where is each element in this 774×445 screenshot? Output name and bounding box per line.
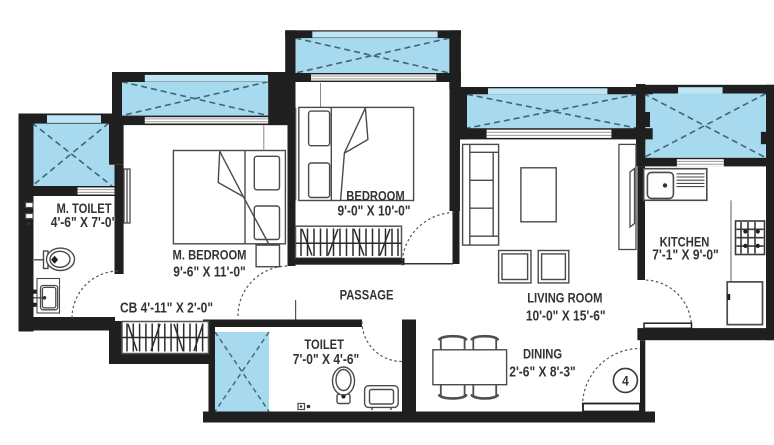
svg-text:7'-1" X 9'-0": 7'-1" X 9'-0" [652, 246, 718, 263]
svg-text:2'-6" X 8'-3": 2'-6" X 8'-3" [509, 363, 575, 380]
svg-text:9'-0" X 10'-0": 9'-0" X 10'-0" [337, 202, 410, 219]
svg-text:DINING: DINING [523, 346, 562, 361]
svg-text:10'-0" X 15'-6": 10'-0" X 15'-6" [526, 307, 606, 324]
svg-text:7'-0" X 4'-6": 7'-0" X 4'-6" [293, 351, 359, 368]
svg-text:LIVING ROOM: LIVING ROOM [527, 290, 602, 305]
svg-text:PASSAGE: PASSAGE [340, 287, 394, 302]
svg-text:9'-6" X 11'-0": 9'-6" X 11'-0" [173, 263, 245, 280]
svg-text:4: 4 [622, 373, 629, 389]
svg-text:CB 4'-11" X 2'-0": CB 4'-11" X 2'-0" [120, 299, 213, 316]
svg-text:4'-6" X 7'-0": 4'-6" X 7'-0" [51, 214, 117, 231]
svg-text:M. BEDROOM: M. BEDROOM [173, 247, 247, 262]
